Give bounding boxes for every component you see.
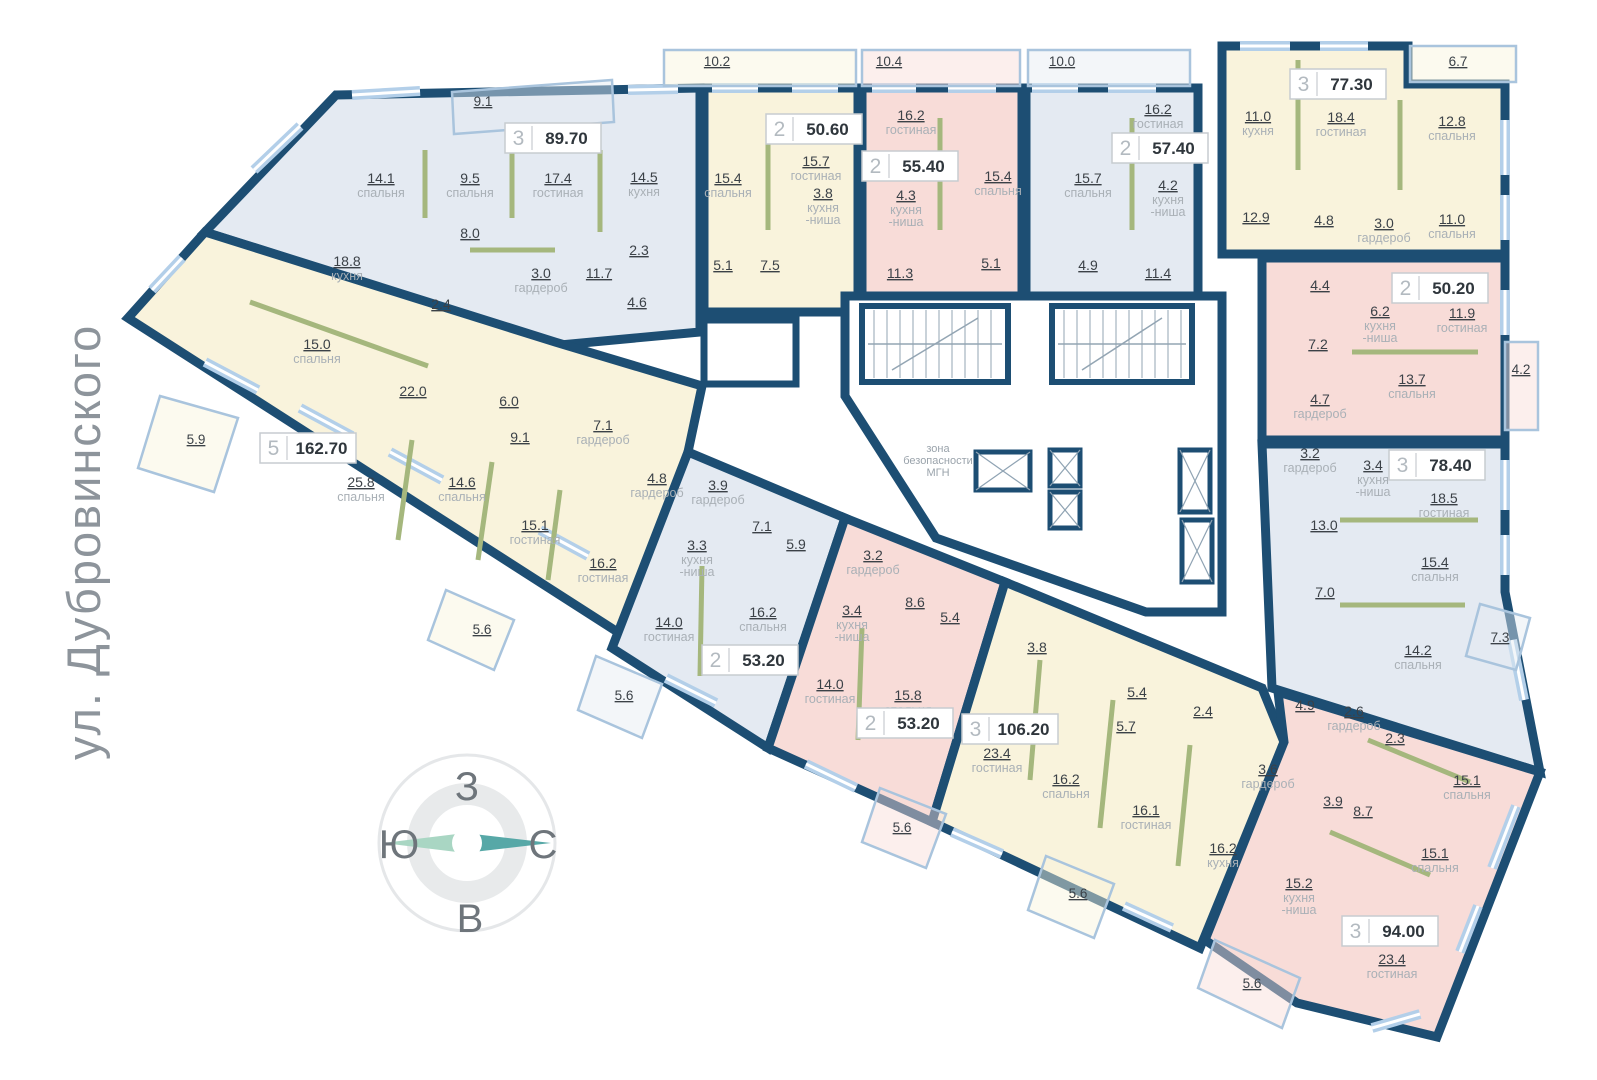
room-area-label: 11.0 [1439, 211, 1465, 227]
room-name-label: гостиная [1121, 818, 1172, 832]
room-name-label: гостиная [1316, 125, 1367, 139]
plate-rooms-count: 3 [513, 127, 525, 150]
balcony-area-label: 10.0 [1049, 54, 1075, 69]
room-name-label: -ниша [679, 565, 714, 579]
room-area-label: 15.7 [1074, 170, 1101, 186]
plate-total-area: 162.70 [296, 439, 348, 458]
room-area-label: 17.4 [544, 170, 571, 186]
vestibule [704, 320, 796, 384]
plate-total-area: 94.00 [1382, 922, 1425, 941]
room-area-label: 11.7 [586, 265, 612, 281]
room-area-label: 2.3 [629, 242, 649, 258]
room-name-label: гостиная [886, 123, 937, 137]
room-name-label: гостиная [791, 169, 842, 183]
room-name-label: -ниша [834, 630, 869, 644]
plate-total-area: 53.20 [897, 714, 940, 733]
compass-east: В [457, 897, 484, 941]
room-area-label: 23.4 [1378, 951, 1405, 967]
apartment-plate: 253.20 [702, 645, 798, 675]
room-name-label: спальня [1064, 186, 1111, 200]
room-area-label: 14.6 [448, 474, 475, 490]
balcony [664, 50, 856, 86]
room-name-label: гостиная [578, 571, 629, 585]
room-area-label: 2.4 [1193, 703, 1213, 719]
room-area-label: 4.7 [1310, 391, 1330, 407]
svg-text:зона: зона [926, 443, 950, 455]
room-area-label: 5.4 [940, 609, 960, 625]
floor-plan-page: ул. Дубровинского 9.110.210.410.06.74.27… [0, 0, 1597, 1080]
room-area-label: 14.0 [655, 614, 682, 630]
room-area-label: 5.7 [1116, 718, 1136, 734]
room-area-label: 3.0 [1374, 215, 1394, 231]
apartments-layer [128, 46, 1540, 1037]
room-name-label: гостиная [1133, 117, 1184, 131]
room-name-label: гардероб [576, 433, 629, 447]
svg-text:безопасности: безопасности [903, 455, 973, 467]
room-name-label: гостиная [644, 630, 695, 644]
room-name-label: спальня [704, 186, 751, 200]
room-area-label: 16.2 [589, 555, 616, 571]
room-name-label: спальня [1411, 570, 1458, 584]
balcony-area-label: 5.6 [473, 622, 492, 637]
room-area-label: 14.5 [630, 169, 657, 185]
balcony-area-label: 4.2 [1512, 362, 1531, 377]
balcony [428, 590, 514, 670]
room-area-label: 4.2 [1158, 177, 1178, 193]
room-name-label: гардероб [691, 493, 744, 507]
balcony-area-label: 10.4 [876, 54, 903, 69]
balcony-area-label: 7.3 [1491, 630, 1510, 645]
room-name-label: спальня [337, 490, 384, 504]
plate-rooms-count: 2 [710, 649, 722, 672]
floor-plan: ул. Дубровинского 9.110.210.410.06.74.27… [0, 0, 1597, 1080]
room-area-label: 4.9 [1078, 257, 1098, 273]
room-area-label: 6.2 [1370, 303, 1390, 319]
room-area-label: 15.2 [1285, 875, 1312, 891]
room-area-label: 15.7 [802, 153, 829, 169]
room-name-label: кухня [628, 185, 660, 199]
plate-total-area: 106.20 [998, 720, 1050, 739]
room-area-label: 7.2 [1308, 336, 1328, 352]
room-area-label: 3.6 [1258, 761, 1278, 777]
room-name-label: кухня [1207, 856, 1239, 870]
room-area-label: 3.2 [863, 547, 883, 563]
room-name-label: спальня [1394, 658, 1441, 672]
plate-total-area: 53.20 [742, 651, 785, 670]
room-area-label: 18.8 [333, 253, 360, 269]
plate-total-area: 89.70 [545, 129, 588, 148]
room-area-label: 14.2 [1404, 642, 1431, 658]
room-area-label: 3.9 [708, 477, 728, 493]
room-name-label: гардероб [514, 281, 567, 295]
room-area-label: 23.4 [983, 745, 1010, 761]
plate-rooms-count: 2 [1120, 137, 1132, 160]
apartment-plate: 378.40 [1389, 450, 1485, 480]
room-area-label: 13.7 [1398, 371, 1425, 387]
room-name-label: гостиная [1419, 506, 1470, 520]
plate-rooms-count: 2 [774, 118, 786, 141]
room-name-label: гостиная [805, 692, 856, 706]
room-name-label: спальня [1388, 387, 1435, 401]
room-area-label: 7.1 [593, 417, 613, 433]
compass-north: С [529, 823, 558, 867]
room-name-label: гардероб [1327, 719, 1380, 733]
balcony-area-label: 6.7 [1449, 54, 1468, 69]
room-name-label: спальня [1428, 129, 1475, 143]
room-area-label: 3.2 [1300, 445, 1320, 461]
room-area-label: 22.0 [399, 383, 426, 399]
room-name-label: -ниша [805, 213, 840, 227]
room-area-label: 8.7 [1353, 803, 1373, 819]
room-name-label: гардероб [630, 486, 683, 500]
balcony-area-label: 5.6 [1243, 976, 1262, 991]
room-area-label: 16.2 [897, 107, 924, 123]
apartment-plate: 250.60 [766, 114, 862, 144]
room-area-label: 2.4 [431, 296, 451, 312]
plate-rooms-count: 2 [1400, 277, 1412, 300]
room-name-label: гостиная [510, 533, 561, 547]
street-label: ул. Дубровинского [57, 324, 110, 760]
room-area-label: 5.9 [786, 536, 806, 552]
room-name-label: -ниша [1355, 485, 1390, 499]
plate-total-area: 50.20 [1432, 279, 1475, 298]
room-area-label: 11.0 [1245, 108, 1271, 124]
room-area-label: 15.1 [1421, 845, 1448, 861]
room-area-label: 8.0 [460, 225, 480, 241]
plate-total-area: 50.60 [806, 120, 849, 139]
room-area-label: 11.3 [887, 265, 913, 281]
room-area-label: 4.9 [1295, 697, 1315, 713]
apartment-plate: 250.20 [1392, 273, 1488, 303]
room-area-label: 16.2 [749, 604, 776, 620]
apartment-plate: 253.20 [857, 708, 953, 738]
svg-text:МГН: МГН [926, 467, 949, 479]
apartment-plate: 377.30 [1290, 69, 1386, 99]
room-area-label: 15.4 [1421, 554, 1448, 570]
room-area-label: 4.3 [896, 187, 916, 203]
balcony-area-label: 5.6 [615, 688, 634, 703]
room-name-label: спальня [446, 186, 493, 200]
room-name-label: спальня [1428, 227, 1475, 241]
room-name-label: спальня [1443, 788, 1490, 802]
room-name-label: спальня [1411, 861, 1458, 875]
room-area-label: 2.3 [1385, 730, 1405, 746]
room-area-label: 5.1 [981, 255, 1001, 271]
room-name-label: спальня [357, 186, 404, 200]
room-name-label: спальня [293, 352, 340, 366]
room-name-label: спальня [739, 620, 786, 634]
room-name-label: гостиная [1367, 967, 1418, 981]
room-name-label: гостиная [1437, 321, 1488, 335]
balcony-area-label: 5.9 [187, 432, 206, 447]
room-area-label: 15.0 [303, 336, 330, 352]
apartment-plate: 389.70 [505, 123, 601, 153]
plate-rooms-count: 3 [970, 718, 982, 741]
room-area-label: 12.8 [1438, 113, 1465, 129]
room-area-label: 6.0 [499, 393, 519, 409]
room-area-label: 3.3 [687, 537, 707, 553]
room-name-label: гардероб [1293, 407, 1346, 421]
room-area-label: 14.0 [816, 676, 843, 692]
balcony-area-label: 5.6 [893, 820, 912, 835]
room-area-label: 3.4 [1363, 457, 1383, 473]
room-area-label: 11.4 [1145, 265, 1171, 281]
room-area-label: 9.1 [510, 429, 530, 445]
balcony-area-label: 5.6 [1069, 886, 1088, 901]
room-area-label: 15.4 [714, 170, 741, 186]
room-name-label: гостиная [972, 761, 1023, 775]
room-area-label: 12.9 [1242, 209, 1269, 225]
room-area-label: 16.1 [1132, 802, 1159, 818]
apartment-plate: 257.40 [1112, 133, 1208, 163]
room-name-label: гардероб [1357, 231, 1410, 245]
room-name-label: гардероб [1283, 461, 1336, 475]
balcony-area-label: 10.2 [704, 54, 730, 69]
compass: З Ю С В [379, 755, 558, 941]
room-name-label: кухня [331, 269, 363, 283]
room-area-label: 15.4 [984, 168, 1011, 184]
room-area-label: 7.0 [1315, 584, 1335, 600]
room-name-label: -ниша [888, 215, 923, 229]
room-area-label: 5.4 [1127, 684, 1147, 700]
room-area-label: 7.5 [760, 257, 780, 273]
room-area-label: 16.2 [1144, 101, 1171, 117]
room-area-label: 3.9 [1323, 793, 1343, 809]
room-area-label: 15.1 [1453, 772, 1480, 788]
room-area-label: 18.5 [1430, 490, 1457, 506]
plate-rooms-count: 5 [268, 437, 280, 460]
room-name-label: кухня [1242, 124, 1274, 138]
room-name-label: спальня [974, 184, 1021, 198]
room-area-label: 15.8 [894, 687, 921, 703]
plate-total-area: 55.40 [902, 157, 945, 176]
apartment-plate: 3106.20 [962, 714, 1058, 744]
room-area-label: 13.0 [1310, 517, 1337, 533]
room-area-label: 3.0 [531, 265, 551, 281]
room-area-label: 3.8 [1027, 639, 1047, 655]
room-name-label: -ниша [1362, 331, 1397, 345]
plate-total-area: 77.30 [1330, 75, 1373, 94]
room-area-label: 16.2 [1209, 840, 1236, 856]
room-area-label: 2.6 [1344, 703, 1364, 719]
window-glass-line [628, 89, 678, 90]
plate-rooms-count: 3 [1350, 920, 1362, 943]
room-name-label: гардероб [846, 563, 899, 577]
plate-total-area: 57.40 [1152, 139, 1195, 158]
compass-west: З [455, 765, 479, 809]
room-area-label: 5.1 [713, 257, 733, 273]
room-name-label: спальня [1042, 787, 1089, 801]
room-area-label: 4.6 [627, 294, 647, 310]
room-area-label: 7.1 [752, 518, 772, 534]
apartment-plate: 255.40 [862, 151, 958, 181]
plate-rooms-count: 2 [865, 712, 877, 735]
room-area-label: 15.1 [521, 517, 548, 533]
room-area-label: 25.8 [347, 474, 374, 490]
room-name-label: -ниша [1150, 205, 1185, 219]
room-area-label: 3.4 [842, 602, 862, 618]
room-area-label: 14.1 [367, 170, 394, 186]
room-area-label: 3.8 [813, 185, 833, 201]
room-area-label: 8.6 [905, 594, 925, 610]
room-name-label: -ниша [1281, 903, 1316, 917]
room-area-label: 4.4 [1310, 277, 1330, 293]
room-area-label: 4.8 [647, 470, 667, 486]
plate-rooms-count: 3 [1397, 454, 1409, 477]
apartment-plate: 5162.70 [260, 433, 356, 463]
plate-rooms-count: 2 [870, 155, 882, 178]
plate-rooms-count: 3 [1298, 73, 1310, 96]
room-area-label: 11.9 [1449, 305, 1475, 321]
room-name-label: спальня [438, 490, 485, 504]
room-area-label: 4.8 [1314, 212, 1334, 228]
balcony-area-label: 9.1 [474, 94, 493, 109]
room-area-label: 16.2 [1052, 771, 1079, 787]
room-area-label: 9.5 [460, 170, 480, 186]
room-name-label: гостиная [533, 186, 584, 200]
balcony [1505, 342, 1538, 430]
room-name-label: гардероб [1241, 777, 1294, 791]
room-area-label: 18.4 [1327, 109, 1354, 125]
plate-total-area: 78.40 [1429, 456, 1472, 475]
compass-south: Ю [379, 823, 419, 867]
compass-hub [452, 828, 482, 858]
apartment-plate: 394.00 [1342, 916, 1438, 946]
